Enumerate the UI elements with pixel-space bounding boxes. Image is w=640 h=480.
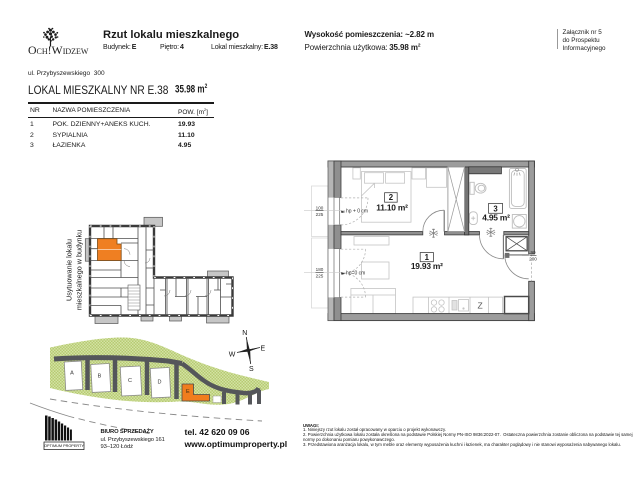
svg-text:2: 2 — [389, 193, 394, 202]
svg-text:200: 200 — [529, 257, 537, 262]
svg-text:19.93 m²: 19.93 m² — [411, 261, 443, 271]
svg-text:D: D — [158, 380, 162, 386]
svg-text:W: W — [229, 352, 236, 359]
svg-text:A: A — [70, 371, 74, 377]
svg-text:4.95 m²: 4.95 m² — [482, 212, 510, 222]
svg-text:C: C — [128, 378, 132, 384]
svg-text:225: 225 — [316, 274, 324, 279]
svg-text:11.10 m²: 11.10 m² — [376, 203, 408, 213]
svg-text:hp=0 cm: hp=0 cm — [346, 270, 365, 276]
svg-text:Z: Z — [478, 301, 483, 311]
svg-text:N: N — [242, 330, 247, 337]
svg-text:B: B — [98, 374, 102, 380]
svg-text:100: 100 — [316, 205, 324, 210]
svg-text:hp + 0 cm: hp + 0 cm — [346, 209, 368, 215]
svg-text:E: E — [186, 389, 190, 395]
svg-text:OPTIMUM PROPERTY: OPTIMUM PROPERTY — [44, 444, 84, 448]
svg-text:90: 90 — [530, 250, 536, 255]
svg-text:180: 180 — [316, 267, 324, 272]
svg-text:225: 225 — [316, 212, 324, 217]
svg-text:E: E — [260, 346, 265, 353]
svg-text:S: S — [249, 366, 254, 373]
